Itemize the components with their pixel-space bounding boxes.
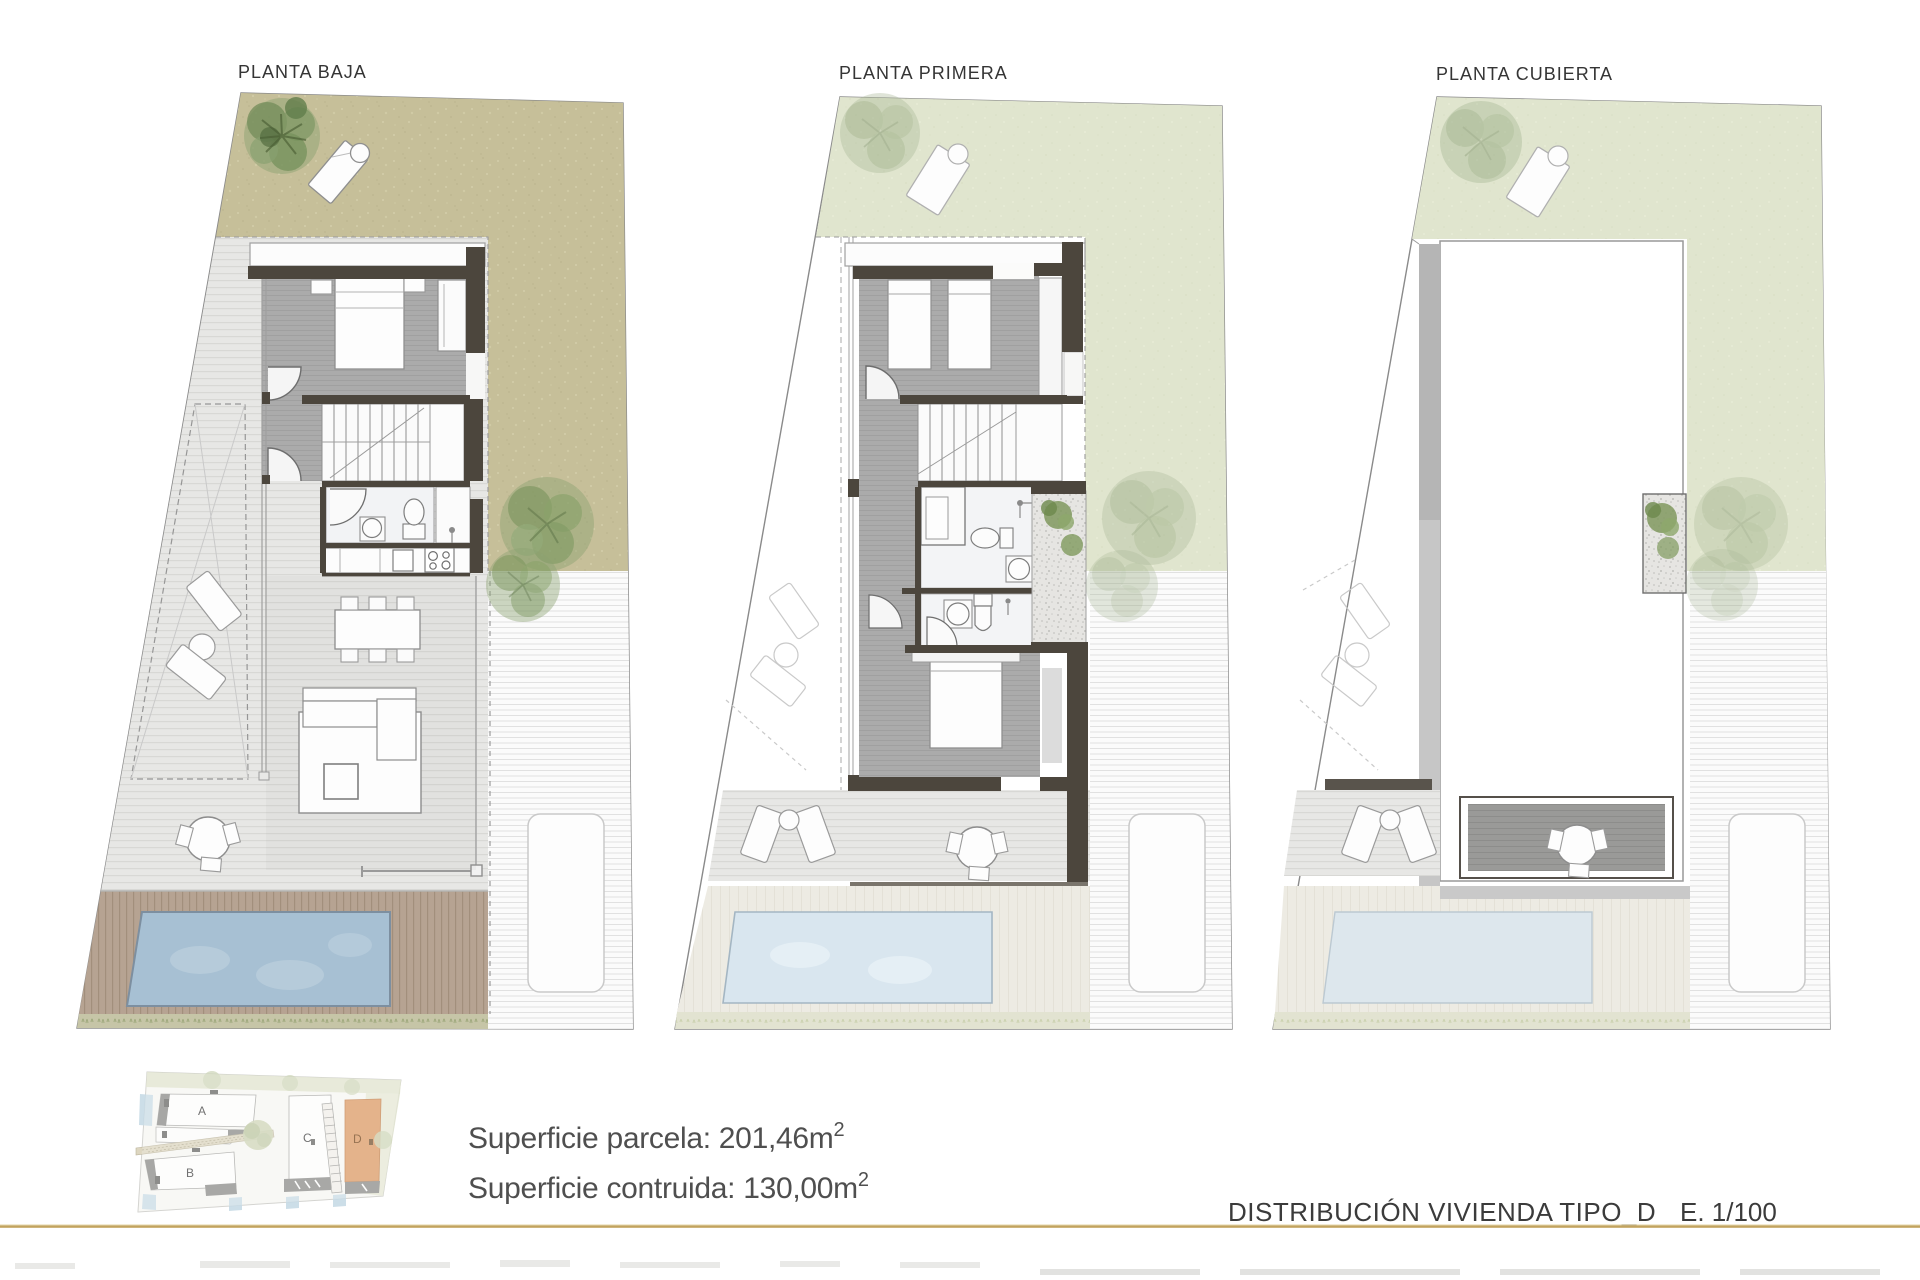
svg-text:PLANTA PRIMERA: PLANTA PRIMERA [839,63,1008,83]
svg-text:Superficie parcela: 201,46m2: Superficie parcela: 201,46m2 [468,1119,844,1155]
svg-text:DISTRIBUCIÓN VIVIENDA TIPO_D: DISTRIBUCIÓN VIVIENDA TIPO_D [1228,1197,1656,1227]
svg-text:PLANTA CUBIERTA: PLANTA CUBIERTA [1436,64,1613,84]
svg-text:E. 1/100: E. 1/100 [1680,1197,1777,1227]
svg-text:PLANTA BAJA: PLANTA BAJA [238,62,367,82]
svg-text:Superficie contruida: 130,00m2: Superficie contruida: 130,00m2 [468,1169,869,1205]
